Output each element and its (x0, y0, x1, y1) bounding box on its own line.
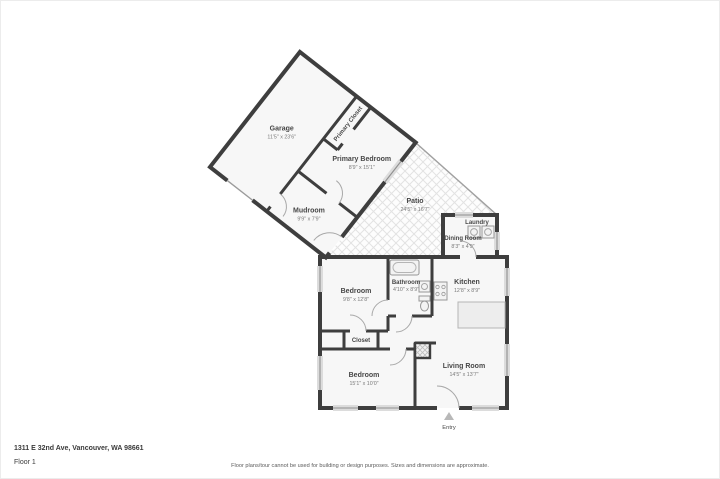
kitchen-counter (458, 302, 505, 328)
bedroom-lower-dims: 15'1" x 10'0" (349, 381, 378, 387)
dining-name: Dining Room (444, 236, 481, 242)
bathroom-dims: 4'10" x 8'9" (393, 287, 419, 293)
primary-bedroom-name: Primary Bedroom (332, 156, 391, 163)
floor-label: Floor 1 (14, 459, 36, 466)
mudroom-name: Mudroom (293, 208, 325, 215)
disclaimer-text: Floor plans/tour cannot be used for buil… (231, 463, 489, 469)
patio-name: Patio (406, 198, 423, 205)
entry-label: Entry (442, 425, 456, 431)
floorplan-drawing: Garage 11'5" x 23'6" Primary Closet Prim… (0, 0, 720, 479)
mudroom-dims: 9'9" x 7'9" (297, 217, 320, 223)
garage-dims: 11'5" x 23'6" (267, 134, 296, 140)
dining-dims: 8'3" x 4'9" (451, 244, 474, 250)
kitchen-name: Kitchen (454, 279, 480, 286)
room-label-bathroom: Bathroom 4'10" x 8'9" (392, 280, 420, 293)
living-room-name: Living Room (443, 363, 485, 370)
toilet-tank (419, 296, 430, 301)
living-room-dims: 14'5" x 13'7" (449, 372, 478, 378)
address-text: 1311 E 32nd Ave, Vancouver, WA 98661 (14, 445, 144, 452)
bedroom-mid-dims: 9'8" x 12'8" (343, 297, 369, 303)
kitchen-dims: 12'8" x 8'9" (454, 288, 480, 294)
laundry-name: Laundry (465, 220, 489, 226)
patio-dims: 24'5" x 16'7" (400, 207, 429, 213)
entry-marker: Entry (442, 412, 456, 431)
bedroom-mid-name: Bedroom (341, 288, 372, 295)
primary-bedroom-dims: 8'9" x 15'1" (349, 165, 375, 171)
toilet-bowl (421, 301, 429, 311)
garage-name: Garage (270, 125, 294, 132)
fireplace-block (415, 343, 430, 358)
footer: 1311 E 32nd Ave, Vancouver, WA 98661 Flo… (14, 445, 489, 469)
range-stove (434, 282, 447, 300)
entry-arrow-icon (444, 412, 454, 420)
bathroom-name: Bathroom (392, 280, 420, 286)
bedroom-lower-name: Bedroom (349, 372, 380, 379)
bathroom-sink (419, 281, 430, 292)
dryer-icon (482, 226, 494, 238)
closet-name: Closet (352, 338, 370, 344)
floorplan-page: Garage 11'5" x 23'6" Primary Closet Prim… (0, 0, 720, 479)
